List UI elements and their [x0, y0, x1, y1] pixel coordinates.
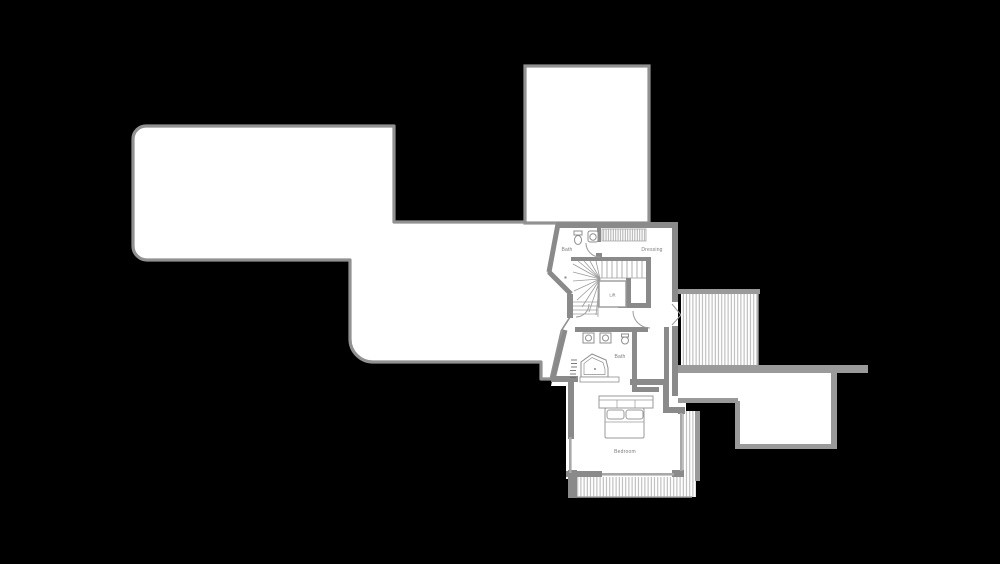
lift-label: Lift: [609, 293, 616, 298]
toilet-icon: [622, 337, 629, 344]
floor-plan-drawing: Bath Dressing Lift Bath Bedroom: [0, 0, 1000, 564]
bath-upper-label: Bath: [561, 247, 572, 253]
pillow: [626, 410, 643, 419]
toilet-icon: [575, 236, 582, 245]
wardrobe: [602, 229, 646, 241]
toilet-tank: [574, 231, 582, 235]
floor-plan-canvas: Bath Dressing Lift Bath Bedroom: [0, 0, 1000, 564]
ne-deck: [678, 289, 760, 366]
headboard: [599, 396, 653, 408]
pillow: [607, 410, 624, 419]
bedroom-label: Bedroom: [614, 449, 636, 455]
tub-shelf: [580, 377, 619, 382]
bath-lower-label: Bath: [614, 354, 625, 360]
dressing-label: Dressing: [641, 247, 662, 253]
lift-wall: [626, 278, 631, 308]
roof-outline-north: [525, 66, 649, 223]
